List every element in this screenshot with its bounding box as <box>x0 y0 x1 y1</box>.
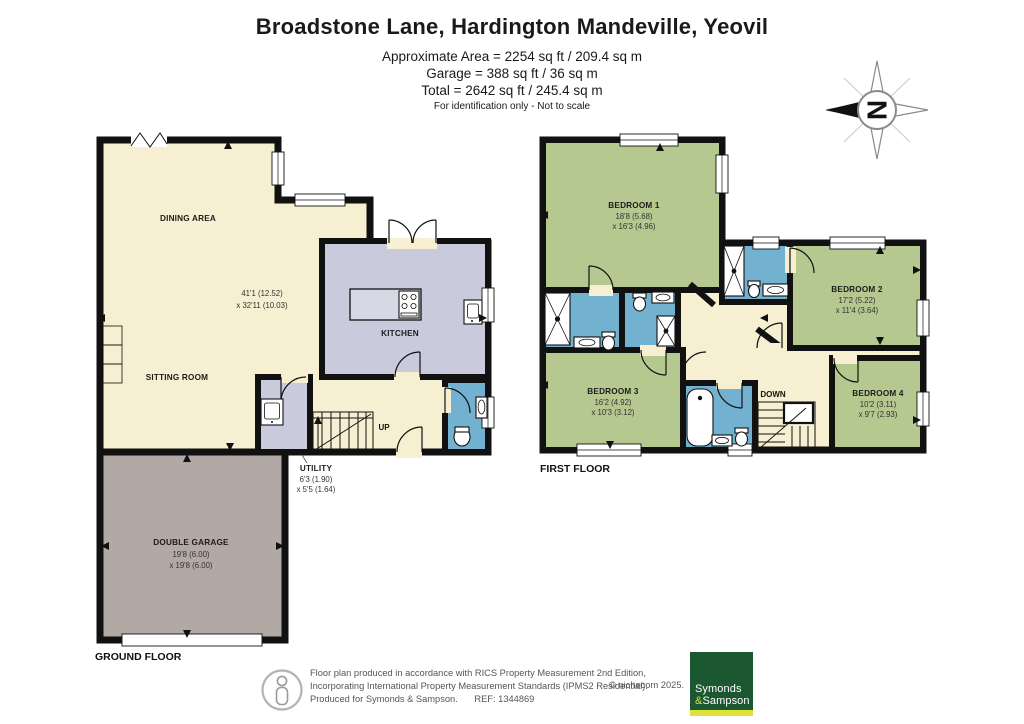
utility-sink-icon <box>261 399 283 425</box>
bedroom2-dims-2: x 11'4 (3.64) <box>836 306 879 315</box>
compass-north-letter: N <box>862 100 893 120</box>
garage-label: DOUBLE GARAGE <box>153 538 229 547</box>
bedroom4-dims-2: x 9'7 (2.93) <box>859 410 898 419</box>
ground-floor-label: GROUND FLOOR <box>95 651 182 663</box>
hob-icon <box>399 291 419 318</box>
utility-label: UTILITY <box>300 464 333 473</box>
toilet-icon <box>454 427 470 446</box>
open-plan-dims-2: x 32'11 (10.03) <box>236 301 288 310</box>
stairs-down-label: DOWN <box>760 390 786 399</box>
kitchen-island <box>350 289 421 320</box>
dining-area-label: DINING AREA <box>160 214 216 223</box>
logo-line-2: &Sampson <box>690 695 753 707</box>
kitchen-label: KITCHEN <box>381 329 419 338</box>
utility-leader-line <box>302 455 307 463</box>
open-plan-dims-1: 41'1 (12.52) <box>241 289 283 298</box>
footer-line-1: Floor plan produced in accordance with R… <box>310 667 648 680</box>
garage-door <box>122 634 262 646</box>
first-floor-label: FIRST FLOOR <box>540 463 610 475</box>
stairs-up-label: UP <box>378 423 390 432</box>
bedroom2-label: BEDROOM 2 <box>831 285 883 294</box>
garage-dims-1: 19'8 (6.00) <box>172 550 209 559</box>
basin-icon <box>476 397 487 418</box>
footer-line-3: Produced for Symonds & Sampson. <box>310 694 458 704</box>
footer-ref: REF: 1344869 <box>474 694 534 704</box>
utility-dims-1: 6'3 (1.90) <box>300 475 333 484</box>
ground-floor-plan: DINING AREA 41'1 (12.52) x 32'11 (10.03)… <box>85 125 515 670</box>
person-scale-icon <box>260 666 304 714</box>
garage-dims-2: x 19'8 (6.00) <box>169 561 212 570</box>
page-title: Broadstone Lane, Hardington Mandeville, … <box>0 14 1024 40</box>
bedroom4-dims-1: 10'2 (3.11) <box>860 400 897 409</box>
footer-copyright: © nichecom 2025. <box>609 680 684 690</box>
bedroom3-dims-2: x 10'3 (3.12) <box>591 408 634 417</box>
bedroom3-label: BEDROOM 3 <box>587 387 639 396</box>
wall-break-symbol <box>131 132 167 147</box>
bedroom4-label: BEDROOM 4 <box>852 389 904 398</box>
logo-line-1: Symonds <box>690 683 753 695</box>
bedroom1-dims-1: 18'8 (5.68) <box>615 212 652 221</box>
bedroom3-dims-1: 16'2 (4.92) <box>594 398 631 407</box>
symonds-sampson-logo: Symonds &Sampson <box>690 652 753 716</box>
footer-line-2: Incorporating International Property Mea… <box>310 680 648 693</box>
logo-accent-bar <box>690 710 753 716</box>
footer-disclaimer: Floor plan produced in accordance with R… <box>310 667 648 707</box>
bedroom1-dims-2: x 16'3 (4.96) <box>612 222 655 231</box>
floorplan-page: Broadstone Lane, Hardington Mandeville, … <box>0 0 1024 724</box>
bedroom1-label: BEDROOM 1 <box>608 201 660 210</box>
sitting-room-label: SITTING ROOM <box>146 373 208 382</box>
utility-dims-2: x 5'5 (1.64) <box>297 485 336 494</box>
bedroom2-dims-1: 17'2 (5.22) <box>838 296 875 305</box>
first-floor-plan: BEDROOM 1 18'8 (5.68) x 16'3 (4.96) BEDR… <box>530 125 940 480</box>
